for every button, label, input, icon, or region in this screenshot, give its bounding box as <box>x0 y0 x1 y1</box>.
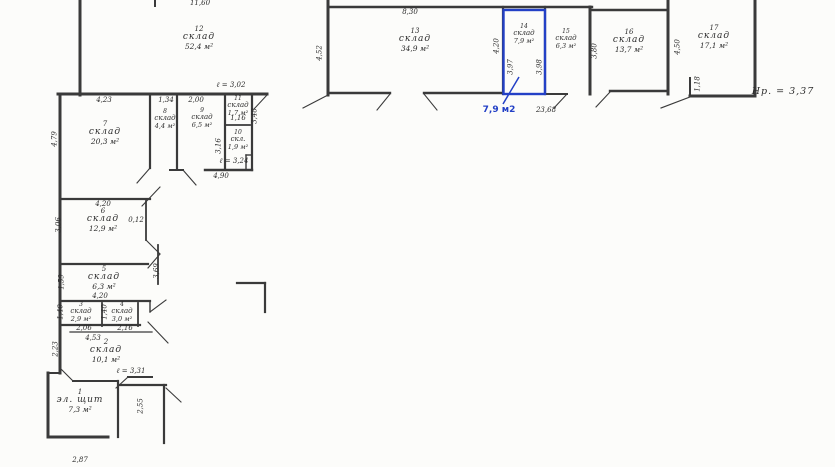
dim-label: 3,16 <box>216 138 223 154</box>
dim-label: 3,97 <box>508 59 515 75</box>
dim-label: 2,16 <box>117 325 133 332</box>
room-7-label: 7склад20,3 м² <box>89 121 121 146</box>
room-16-label: 16склад13,7 м² <box>613 29 645 54</box>
dim-label: 2,55 <box>138 398 145 414</box>
dim-label: 0,12 <box>128 217 144 224</box>
dim-label: 2,23 <box>53 341 60 357</box>
dim-label: ℓ = 3,31 <box>117 368 146 375</box>
dim-label: 2,06 <box>76 325 92 332</box>
dim-label: 4,20 <box>494 38 501 54</box>
dim-label: ℓ = 3,02 <box>217 82 246 89</box>
dim-label: 1,40 <box>58 304 65 320</box>
room-12-label: 12склад52,4 м² <box>183 26 215 51</box>
highlight-callout-line <box>503 77 519 104</box>
dim-label: 1,18 <box>695 76 702 92</box>
room-17-label: 17склад17,1 м² <box>698 25 730 50</box>
floor-plan-drawing <box>0 0 835 467</box>
dim-label: 4,23 <box>96 97 112 104</box>
room-4-label: 4склад3,0 м² <box>111 302 132 322</box>
dim-label: 4,52 <box>317 45 324 61</box>
height-mark-label: Нр. = 3,37 <box>752 87 815 97</box>
dim-label: 4,50 <box>675 39 682 55</box>
dim-label: 8,30 <box>402 9 418 16</box>
dim-label: 4,90 <box>213 173 229 180</box>
dim-label: 3,69 <box>154 263 161 279</box>
dim-label: 2,00 <box>188 97 204 104</box>
dim-label: ℓ = 3,24 <box>220 158 249 165</box>
dim-label: 1,59 <box>59 274 66 290</box>
dim-label: 2,87 <box>72 457 88 464</box>
highlighted-area-label[interactable]: 7,9 м2 <box>483 105 516 115</box>
dim-label: 1,16 <box>230 115 246 122</box>
dim-label: 1,40 <box>102 304 109 320</box>
dim-label: 4,53 <box>85 335 101 342</box>
dim-label: 1,34 <box>158 97 174 104</box>
dim-label: 3,98 <box>537 59 544 75</box>
dim-label: 11,60 <box>190 0 210 7</box>
room-9-label: 9склад6,5 м² <box>191 108 212 128</box>
dim-label: 3,06 <box>56 217 63 233</box>
room-3-label: 3склад2,9 м² <box>70 302 91 322</box>
floor-plan: 1эл. щит7,3 м² 2склад10,1 м² 3склад2,9 м… <box>0 0 835 467</box>
dim-label: 3,48 <box>252 108 259 124</box>
room-13-label: 13склад34,9 м² <box>399 28 431 53</box>
room-6-label: 6склад12,9 м² <box>87 208 119 233</box>
room-14-label: 14склад7,9 м² <box>513 24 534 44</box>
dim-label: 3,80 <box>592 43 599 59</box>
walls <box>48 0 755 443</box>
room-1-label: 1эл. щит7,3 м² <box>57 389 104 414</box>
room-10-label: 10скл.1,9 м² <box>228 130 248 150</box>
room-8-label: 8склад4,4 м² <box>154 109 175 129</box>
dim-label: 4,79 <box>52 131 59 147</box>
door-swing-marks <box>61 92 690 402</box>
dim-label: 4,20 <box>92 293 108 300</box>
room-5-label: 5склад6,3 м² <box>88 266 120 291</box>
room-2-label: 2склад10,1 м² <box>90 339 122 364</box>
room-15-label: 15склад6,3 м² <box>555 29 576 49</box>
dim-label: 4,20 <box>95 201 111 208</box>
dim-label: 23,68 <box>536 107 556 114</box>
